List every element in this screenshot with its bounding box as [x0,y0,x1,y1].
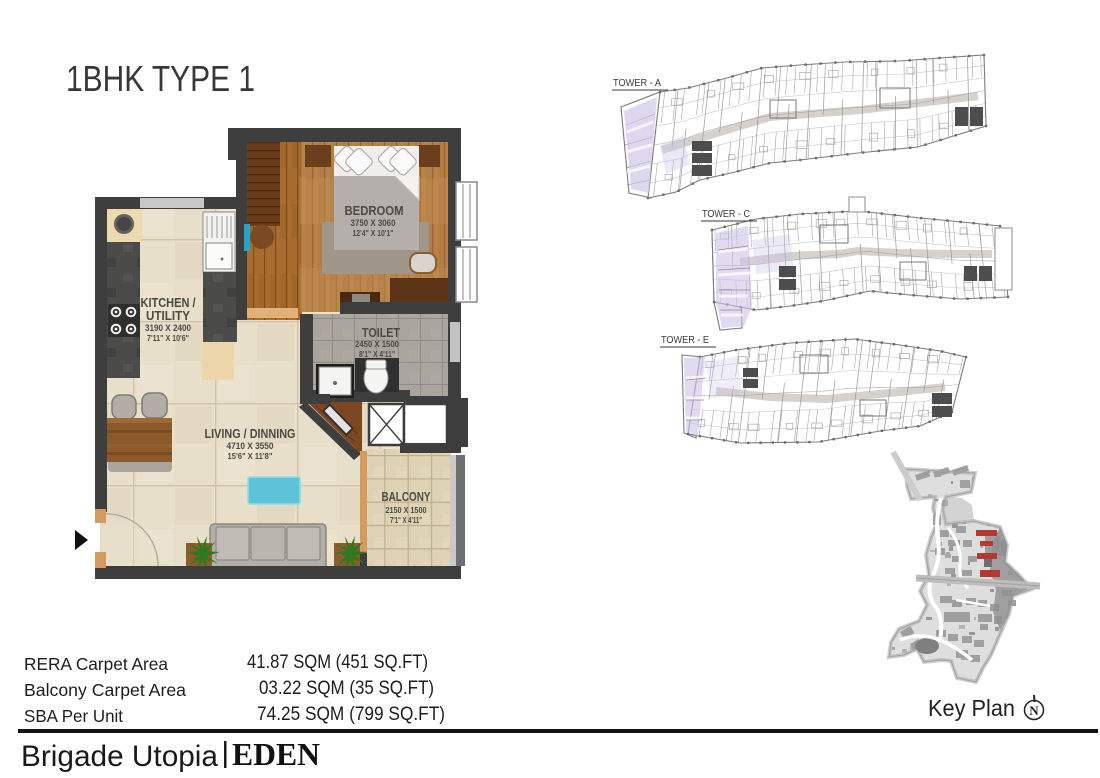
svg-text:03.22 SQM (35 SQ.FT): 03.22 SQM (35 SQ.FT) [259,678,434,699]
svg-text:12'4" X 10'1": 12'4" X 10'1" [353,228,394,238]
svg-text:74.25 SQM (799 SQ.FT): 74.25 SQM (799 SQ.FT) [257,704,445,725]
svg-text:4710 X 3550: 4710 X 3550 [227,441,274,451]
svg-text:15'6" X 11'8": 15'6" X 11'8" [228,451,273,461]
svg-text:BALCONY: BALCONY [382,490,432,504]
svg-text:Brigade Utopia: Brigade Utopia [21,740,218,773]
svg-text:3190 X 2400: 3190 X 2400 [145,323,191,333]
svg-text:BEDROOM: BEDROOM [345,204,404,218]
svg-text:Key Plan: Key Plan [928,695,1015,721]
svg-text:7'11" X 10'6": 7'11" X 10'6" [147,333,189,343]
svg-text:UTILITY: UTILITY [146,309,191,323]
svg-text:7'1" X 4'11": 7'1" X 4'11" [390,516,422,525]
svg-text:RERA Carpet Area: RERA Carpet Area [24,654,168,674]
svg-text:TOILET: TOILET [362,326,400,340]
svg-text:41.87 SQM (451 SQ.FT): 41.87 SQM (451 SQ.FT) [247,652,428,673]
svg-text:N: N [1029,703,1039,718]
svg-text:Balcony Carpet Area: Balcony Carpet Area [24,680,186,700]
svg-text:1BHK TYPE 1: 1BHK TYPE 1 [66,58,255,99]
svg-text:8'1" X 4'11": 8'1" X 4'11" [359,350,395,359]
svg-text:TOWER - E: TOWER - E [661,334,709,346]
svg-text:TOWER - C: TOWER - C [702,208,750,220]
svg-text:3750 X 3060: 3750 X 3060 [351,218,396,228]
svg-text:2450 X 1500: 2450 X 1500 [355,339,399,349]
svg-text:KITCHEN /: KITCHEN / [141,296,196,310]
svg-text:LIVING / DINNING: LIVING / DINNING [205,426,296,441]
svg-text:TOWER - A: TOWER - A [613,77,661,89]
svg-text:2150 X 1500: 2150 X 1500 [386,505,427,515]
svg-text:SBA Per Unit: SBA Per Unit [24,706,123,726]
svg-text:EDEN: EDEN [232,736,320,772]
